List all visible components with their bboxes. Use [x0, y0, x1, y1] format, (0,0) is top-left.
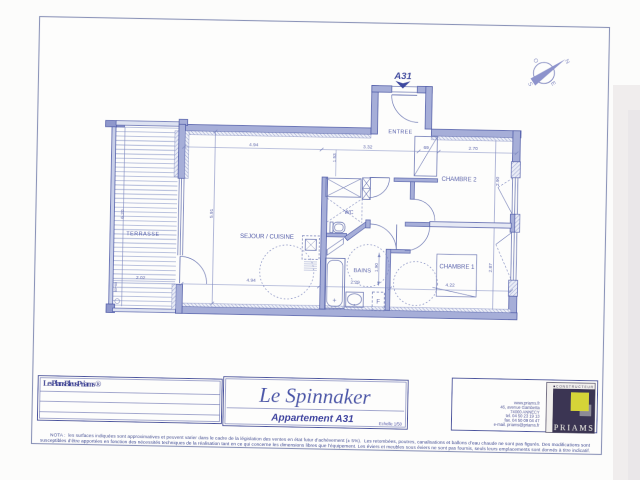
svg-text:5.91: 5.91 [209, 208, 215, 218]
svg-text:2.02: 2.02 [136, 275, 146, 281]
svg-text:BAINS: BAINS [354, 268, 372, 274]
svg-text:4.94: 4.94 [249, 142, 259, 148]
svg-text:Le Spinnaker: Le Spinnaker [258, 383, 372, 409]
svg-text:4.94: 4.94 [246, 278, 256, 284]
svg-text:CHAMBRE 2: CHAMBRE 2 [442, 177, 478, 184]
svg-text:ENTREE: ENTREE [388, 129, 412, 135]
svg-text:2.70: 2.70 [468, 146, 478, 152]
svg-text:A31: A31 [393, 71, 412, 82]
svg-text:Appartement A31: Appartement A31 [270, 413, 354, 426]
svg-text:LesPlansBleusPriams ®: LesPlansBleusPriams ® [43, 379, 101, 389]
svg-text:3.32: 3.32 [363, 144, 373, 150]
svg-text:60+60: 60+60 [114, 282, 118, 292]
svg-text:69: 69 [423, 145, 429, 151]
svg-text:■CONSTRUCTEUR: ■CONSTRUCTEUR [553, 384, 594, 389]
svg-text:4.22: 4.22 [445, 283, 455, 289]
svg-text:PROMOTEUR: PROMOTEUR [562, 390, 567, 427]
svg-text:6.20: 6.20 [120, 209, 126, 219]
svg-text:1.90: 1.90 [374, 263, 379, 272]
svg-text:CHAMBRE 1: CHAMBRE 1 [439, 264, 475, 271]
svg-text:2.29: 2.29 [350, 280, 360, 286]
svg-text:WC: WC [344, 210, 353, 216]
svg-text:TERRASSE: TERRASSE [126, 231, 159, 238]
svg-text:e-mail. priams@priams.fr: e-mail. priams@priams.fr [494, 422, 541, 428]
svg-text:F: F [376, 300, 380, 306]
svg-text:SEJOUR / CUISINE: SEJOUR / CUISINE [240, 234, 294, 241]
svg-text:2.90: 2.90 [495, 176, 501, 186]
svg-text:1.53: 1.53 [332, 153, 337, 162]
svg-text:Echelle 1/50: Echelle 1/50 [379, 421, 403, 426]
svg-text:2.87: 2.87 [488, 263, 494, 273]
